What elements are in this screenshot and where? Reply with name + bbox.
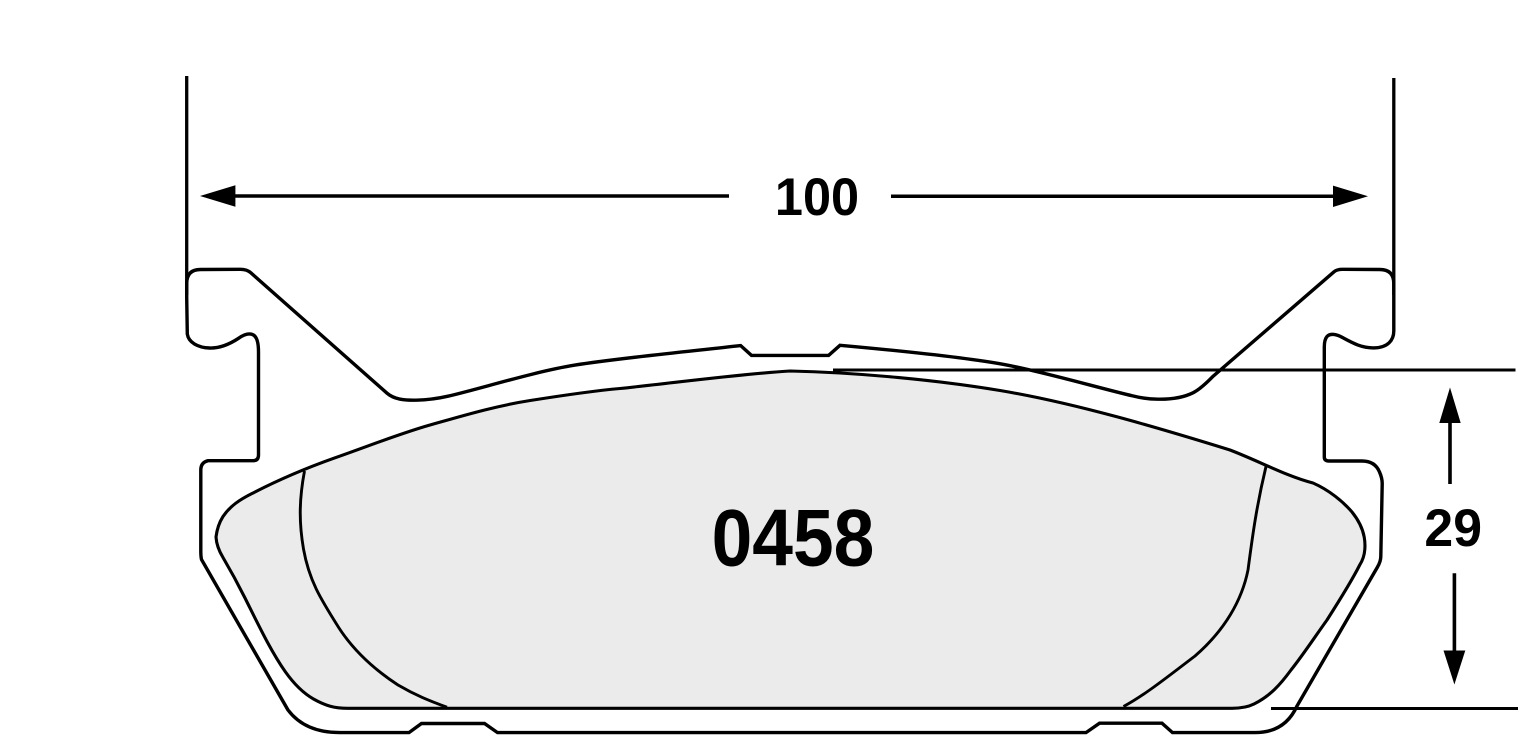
svg-text:0458: 0458 [712,493,875,583]
svg-text:100: 100 [775,167,859,226]
svg-text:29: 29 [1424,499,1482,558]
